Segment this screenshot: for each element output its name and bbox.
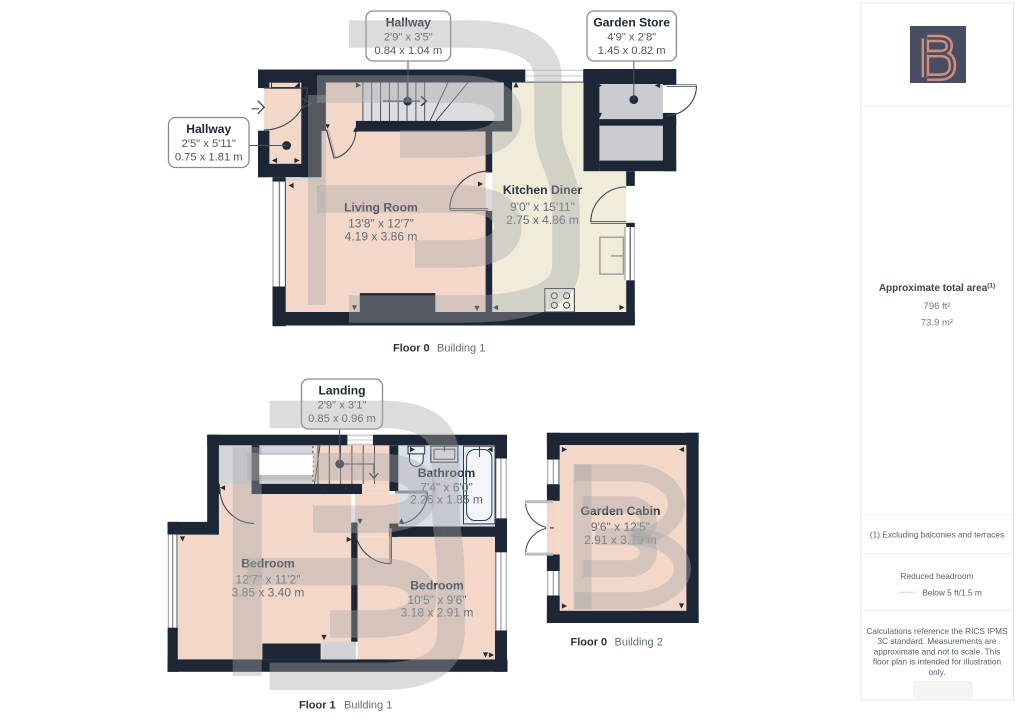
svg-text:3C standard. Measurements are: 3C standard. Measurements are bbox=[878, 636, 997, 646]
svg-text:796 ft²: 796 ft² bbox=[924, 301, 951, 312]
svg-text:only.: only. bbox=[929, 667, 946, 677]
svg-text:13'8" x 12'7": 13'8" x 12'7" bbox=[348, 217, 414, 231]
svg-text:Floor 1: Floor 1 bbox=[299, 700, 336, 712]
svg-text:4'9" x 2'8": 4'9" x 2'8" bbox=[607, 32, 656, 44]
svg-text:Calculations reference the RIC: Calculations reference the RICS IPMS bbox=[866, 626, 1008, 636]
svg-text:Building 2: Building 2 bbox=[615, 637, 663, 649]
svg-text:Building 1: Building 1 bbox=[437, 343, 485, 355]
svg-text:Garden Store: Garden Store bbox=[593, 16, 670, 30]
svg-text:(1) Excluding balconies and te: (1) Excluding balconies and terraces bbox=[870, 530, 1004, 540]
svg-text:Reduced headroom: Reduced headroom bbox=[901, 571, 974, 581]
svg-text:Landing: Landing bbox=[318, 384, 365, 398]
svg-text:4.19 x 3.86 m: 4.19 x 3.86 m bbox=[345, 230, 418, 244]
svg-text:0.75 x 1.81 m: 0.75 x 1.81 m bbox=[175, 152, 243, 164]
svg-text:Below 5 ft/1.5 m: Below 5 ft/1.5 m bbox=[922, 587, 982, 597]
svg-text:1.45 x 0.82 m: 1.45 x 0.82 m bbox=[598, 45, 666, 57]
svg-text:73.9 m²: 73.9 m² bbox=[921, 318, 953, 329]
svg-text:Floor 0: Floor 0 bbox=[571, 637, 608, 649]
svg-text:Floor 0: Floor 0 bbox=[393, 343, 430, 355]
svg-text:Hallway: Hallway bbox=[186, 122, 231, 136]
svg-text:floor plan is intended for ill: floor plan is intended for illustration bbox=[873, 657, 1002, 667]
svg-text:Building 1: Building 1 bbox=[344, 700, 392, 712]
svg-text:Approximate total area(1): Approximate total area(1) bbox=[879, 283, 995, 295]
svg-text:2'5" x 5'11": 2'5" x 5'11" bbox=[182, 138, 236, 150]
svg-text:approximate and not to scale.: approximate and not to scale. This bbox=[874, 646, 1001, 656]
